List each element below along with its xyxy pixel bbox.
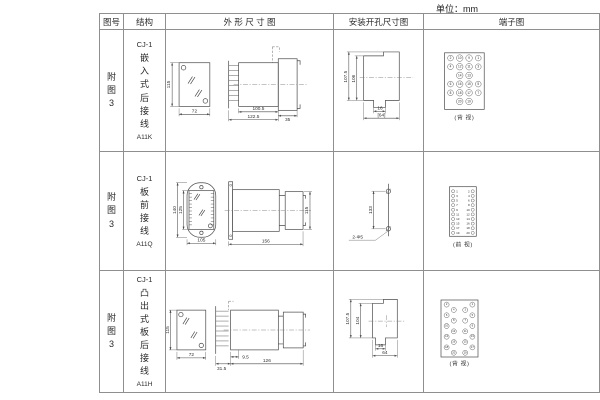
spec-table: 图号 结构 外 形 尺 寸 图 安装开孔尺寸图 端子图 附图3 CJ-1 嵌入式… [99,13,600,393]
terminal-number: 13 [456,217,460,221]
side-view [216,301,310,354]
structure-cell: CJ-1 板前接线 A11Q [124,152,166,271]
dim-label: 107.5 [345,312,351,324]
terminal-number: 9 [456,208,458,212]
terminal-number: 4 [450,65,452,69]
terminal-number: 12 [458,65,462,69]
dim-label: 16 [377,105,383,111]
mounting-drawing-a11q: 133 2-Φ5 [334,152,423,270]
mounting-drawing-cell: 107.5 106 16 [64] [334,30,424,152]
terminal-number: 2 [446,302,448,306]
terminal-number: 3 [464,307,466,311]
dimensions: 107.5 106 16 [64] [343,52,399,120]
terminal-number: 15 [467,82,471,86]
view-caption: (背 视) [449,360,469,368]
terminal-number: 1 [472,302,474,306]
outline-drawing-a11k: 115 72 100.5 35 122.5 [166,30,333,151]
dim-label: 156 [262,239,270,245]
terminal-number: 12 [466,212,470,216]
terminal-number: 2 [450,56,452,60]
glass-mark [183,318,189,325]
dim-label: 64 [382,350,388,356]
terminal-number: 10 [445,324,448,328]
terminal-number: 3 [477,65,479,69]
dim-label: 72 [192,109,198,115]
terminal-number: 7 [456,203,458,207]
mounting-drawing-a11h: 107.5 104 16 64 [334,271,423,392]
figure-no-cell: 附图3 [100,271,124,392]
figure-no: 附图3 [107,71,116,110]
dim-label: 133 [368,206,374,214]
terminal-number: 7 [464,318,466,322]
outline-drawing-cell: 140 125 105 156 115 [166,152,334,271]
structure-model: CJ-1 [137,275,153,284]
figure-no-cell: 附图3 [100,152,124,271]
terminal-drawing-cell: 2143658710912111413161518172019 (背 视) [424,271,599,392]
col-header-outline: 外 形 尺 寸 图 [166,14,334,30]
terminal-number: 19 [456,231,460,235]
dim-label: [64] [378,113,386,119]
structure-model: CJ-1 [137,174,153,183]
structure-cell: CJ-1 嵌入式后接线 A11K [124,30,166,152]
structure-cell: CJ-1 凸出式板后接线 A11H [124,271,166,392]
glass-mark [191,332,197,339]
terminal-number: 16 [466,222,470,226]
terminal-number: 1 [477,56,479,60]
structure-desc: 板前接线 [140,186,149,238]
dim-label: 100.5 [252,106,264,112]
col-header-figure-no: 图号 [100,14,124,30]
terminal-number: 14 [445,334,448,338]
dimensions: 107.5 104 16 64 [345,299,397,357]
terminal-number: 17 [471,345,474,349]
terminal-number: 8 [468,203,470,207]
terminal-drawing-cell: 1234567891011121314151617181920 (前 视) [424,152,599,271]
dim-label: 107.5 [343,70,349,82]
side-view [225,182,311,240]
terminal-number: 5 [477,82,479,86]
structure-code: A11Q [136,241,152,248]
glass-mark [188,77,195,84]
structure-code: A11H [137,381,153,388]
terminal-number: 14 [458,73,462,77]
mounting-drawing-cell: 107.5 104 16 64 [334,271,424,392]
terminal-drawing-a11k: 2109141211314136161558181772019 (背 视) [424,30,599,151]
terminal-number: 10 [466,208,470,212]
terminal-number: 20 [466,231,470,235]
hole-spec-label: 2-Φ5 [352,235,363,241]
terminal-number: 11 [456,212,459,216]
terminal-number: 18 [458,91,462,95]
structure-code: A11K [137,134,152,141]
terminal-strip [189,194,192,225]
col-header-terminal: 端子图 [424,14,599,30]
col-header-mounting: 安装开孔尺寸图 [334,14,424,30]
terminal-number: 11 [464,329,467,333]
terminal-pins [216,311,229,346]
cutout-outline [373,299,398,344]
side-view [229,47,307,110]
terminal-number: 7 [477,91,479,95]
view-caption: (前 视) [453,241,473,249]
terminal-drawing-a11h: 2143658710912111413161518172019 (背 视) [424,271,599,392]
figure-no: 附图3 [107,191,116,230]
terminal-block [450,187,477,237]
dimensions: 133 2-Φ5 [349,191,389,240]
terminal-number: 19 [467,99,471,103]
terminal-number: 18 [466,226,470,230]
figure-no-cell: 附图3 [100,30,124,152]
terminal-number: 6 [468,199,470,203]
terminal-number: 20 [458,99,462,103]
terminal-number: 19 [464,350,467,354]
mounting-drawing-cell: 133 2-Φ5 [334,152,424,271]
terminal-number: 17 [467,91,471,95]
terminal-number: 12 [452,329,455,333]
dim-label: 122.5 [248,114,260,120]
terminal-number: 8 [450,91,452,95]
dim-label: 9.5 [242,355,249,361]
glass-mark [199,210,205,216]
dim-label: 16 [378,343,384,349]
front-view [179,63,210,107]
terminal-number: 11 [467,65,471,69]
dim-label: 106 [351,74,357,82]
glass-mark [195,90,202,97]
terminal-number: 1 [456,189,458,193]
outline-drawing-a11q: 140 125 105 156 115 [166,152,333,270]
terminal-drawing-cell: 2109141211314136161558181772019 (背 视) [424,30,599,152]
terminal-pins [229,66,239,101]
terminal-number: 14 [466,217,470,221]
dim-label: 115 [166,326,171,334]
terminal-number: 16 [452,340,455,344]
terminal-staggered-back: 2143658710912111413161518172019 [444,302,475,355]
dim-label: 125 [178,206,184,214]
outline-drawing-cell: 115 72 9.5 31.5 126 [166,271,334,392]
dim-label: 31.5 [217,366,227,372]
terminal-number: 2 [468,189,470,193]
terminal-number: 20 [452,350,455,354]
dim-label: 72 [189,352,195,358]
terminal-number: 10 [458,56,462,60]
terminal-number: 13 [471,334,474,338]
hook-dashed [229,301,234,310]
outline-drawing-a11h: 115 72 9.5 31.5 126 [166,271,333,392]
terminal-number: 6 [450,82,452,86]
terminal-number: 9 [468,56,470,60]
dimensions: 140 125 105 156 115 [172,183,312,246]
terminal-number: 6 [446,313,448,317]
dim-label: 35 [285,117,291,123]
terminal-strip [211,194,214,225]
terminal-number: 4 [453,307,455,311]
terminal-number: 3 [456,194,458,198]
glass-mark [194,194,200,200]
terminal-number: 17 [456,226,460,230]
terminal-number: 16 [458,82,462,86]
front-view [177,310,206,350]
dimensions: 115 72 100.5 35 122.5 [166,63,297,124]
outline-drawing-cell: 115 72 100.5 35 122.5 [166,30,334,152]
terminal-number: 15 [464,340,467,344]
view-caption: (背 视) [454,114,474,122]
dim-label: 115 [304,206,310,214]
terminal-grid-back: 2109141211314136161558181772019 [448,55,482,105]
terminal-number: 15 [456,222,460,226]
terminal-list-front: 1234567891011121314151617181920 [452,189,475,235]
terminal-number: 5 [472,313,474,317]
dim-label: 105 [197,238,205,244]
col-header-structure: 结构 [124,14,166,30]
terminal-number: 4 [468,194,470,198]
mounting-drawing-a11k: 107.5 106 16 [64] [334,30,423,151]
terminal-drawing-a11q: 1234567891011121314151617181920 (前 视) [424,152,599,270]
dim-label: 104 [355,316,361,324]
dimensions: 115 72 9.5 31.5 126 [166,310,303,372]
structure-desc: 凸出式板后接线 [140,287,149,378]
structure-model: CJ-1 [137,40,153,49]
dim-label: 126 [263,358,271,364]
dim-label: 140 [172,206,178,214]
front-view [187,183,216,238]
structure-desc: 嵌入式后接线 [140,52,149,130]
cutout-outline [364,52,400,107]
terminal-number: 18 [445,345,448,349]
figure-no: 附图3 [107,312,116,351]
terminal-number: 8 [453,318,455,322]
dim-label: 115 [166,80,172,88]
terminal-number: 9 [472,324,474,328]
terminal-number: 5 [456,199,458,203]
terminal-number: 13 [467,73,471,77]
